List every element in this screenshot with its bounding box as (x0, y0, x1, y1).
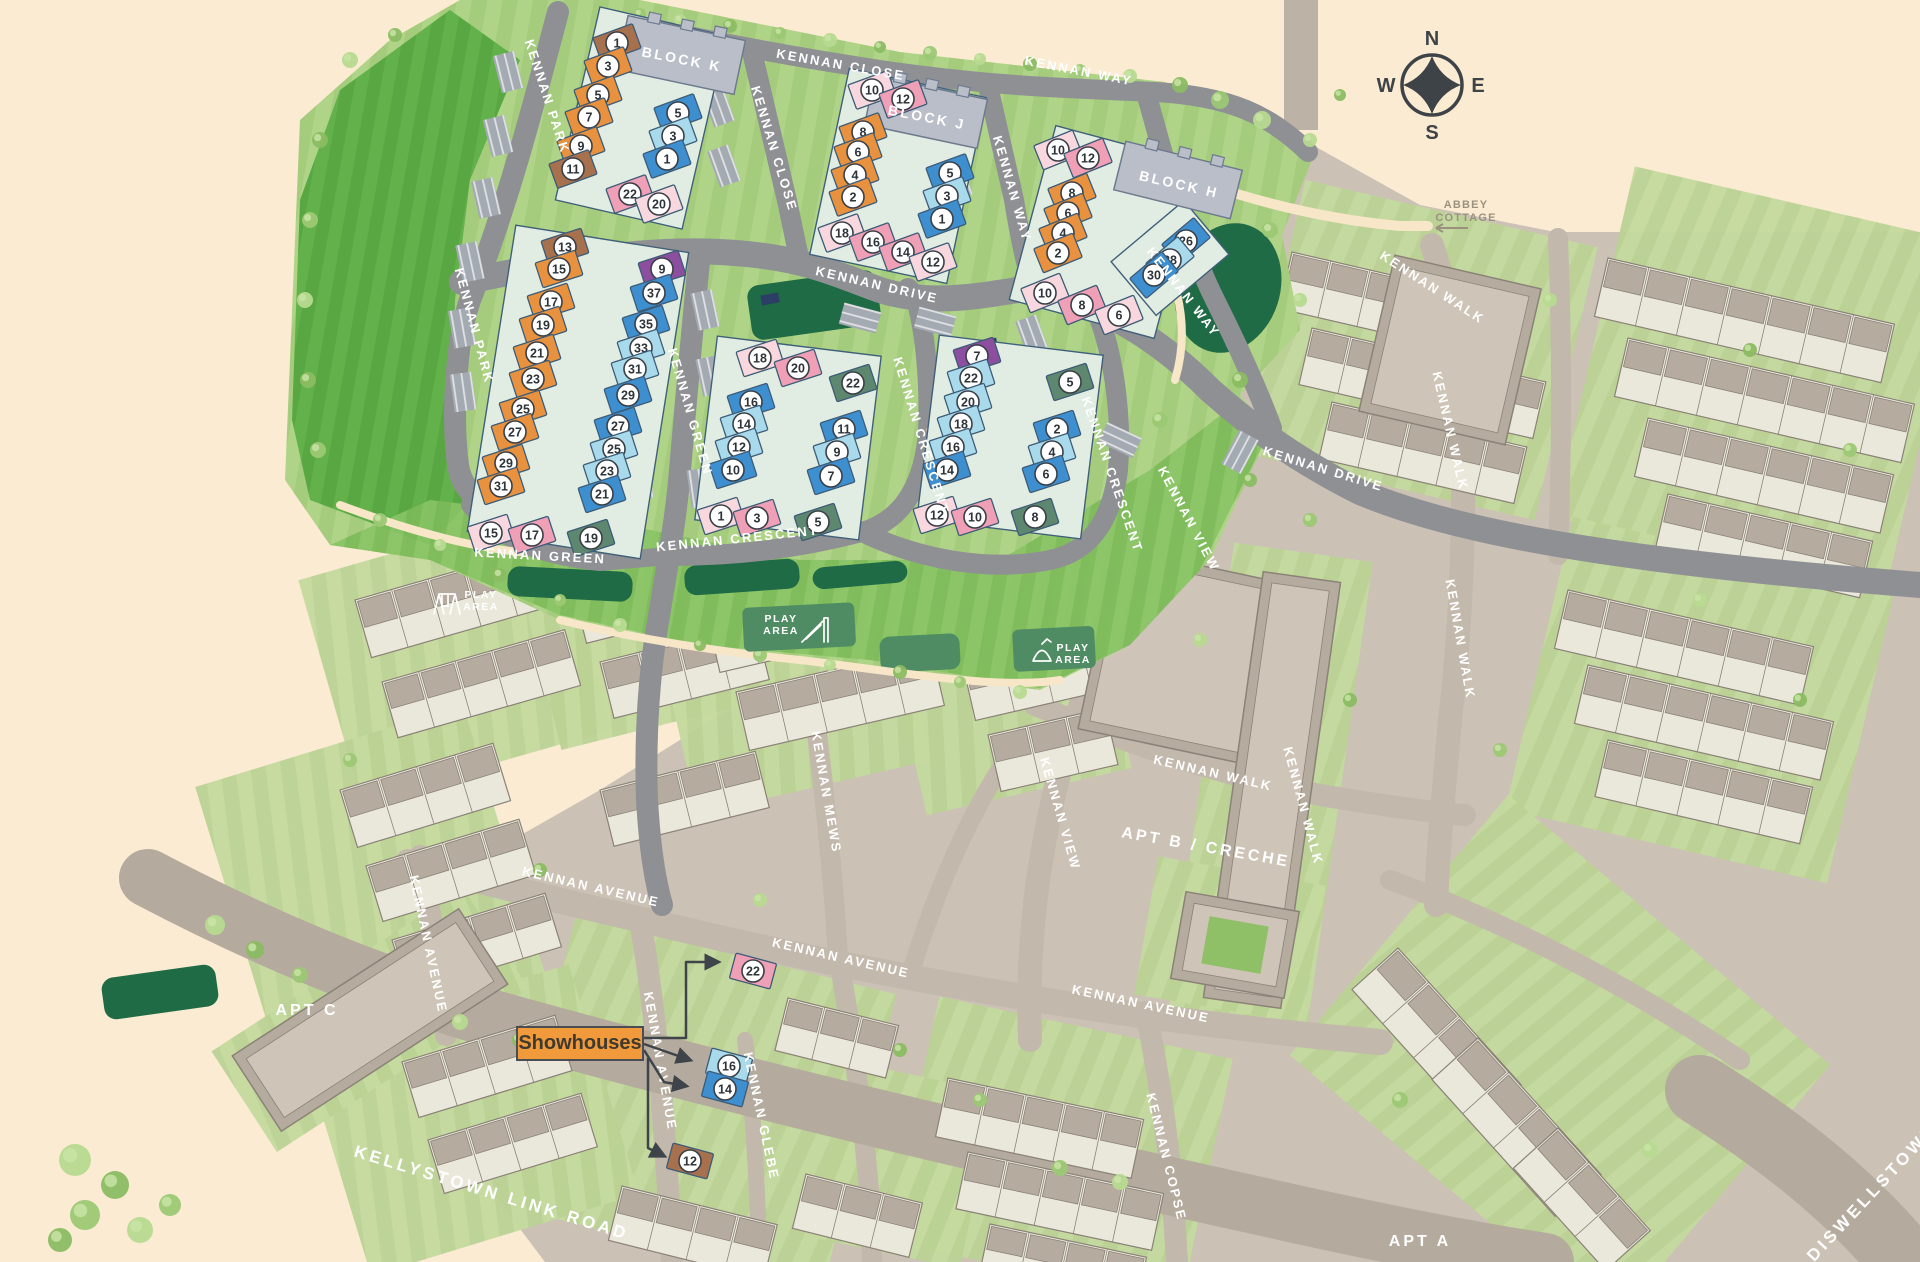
unit-number: 15 (484, 527, 498, 541)
unit-number: 22 (846, 377, 860, 391)
unit-number: 14 (718, 1083, 732, 1097)
compass-south: S (1425, 122, 1438, 144)
unit-number: 20 (791, 362, 805, 376)
unit-number: 7 (586, 111, 593, 125)
unit-number: 9 (834, 446, 841, 460)
unit-number: 4 (852, 169, 859, 183)
unit-number: 10 (1051, 144, 1065, 158)
unit-number: 18 (835, 227, 849, 241)
unit-number: 22 (746, 965, 760, 979)
unit-number: 19 (536, 319, 550, 333)
unit-number: 3 (605, 60, 612, 74)
unit-number: 31 (494, 480, 508, 494)
unit-number: 27 (611, 420, 625, 434)
play-area: PLAYAREA (742, 602, 856, 652)
play-area-label: PLAY (764, 613, 797, 625)
unit-number: 35 (639, 318, 653, 332)
unit-number: 12 (926, 256, 940, 270)
unit-number: 8 (1032, 511, 1039, 525)
site-plan-page: 1357911531222010128642531181614121012864… (0, 0, 1920, 1262)
unit-number: 21 (530, 347, 544, 361)
unit-number: 16 (866, 236, 880, 250)
play-area-label: PLAY (1056, 642, 1089, 654)
unit-number: 23 (526, 373, 540, 387)
unit-number: 21 (595, 488, 609, 502)
unit-number: 37 (647, 287, 661, 301)
svg-text:COTTAGE: COTTAGE (1435, 212, 1496, 224)
unit-number: 16 (722, 1060, 736, 1074)
unit-number: 20 (652, 198, 666, 212)
site-plan-map: 1357911531222010128642531181614121012864… (0, 0, 1920, 1262)
compass-east: E (1471, 75, 1484, 97)
unit-number: 12 (1081, 152, 1095, 166)
unit-number: 1 (939, 213, 946, 227)
unit-number: 5 (947, 167, 954, 181)
unit-number: 6 (855, 146, 862, 160)
play-area-label: AREA (763, 625, 799, 637)
play-area-label: AREA (1055, 654, 1091, 666)
unit-number: 2 (1054, 423, 1061, 437)
unit-number: 1 (664, 153, 671, 167)
unit-number: 3 (944, 190, 951, 204)
apartment-label: APT C (276, 1002, 339, 1019)
unit-number: 7 (828, 470, 835, 484)
play-area-label: AREA (463, 601, 499, 613)
unit-number: 1 (718, 510, 725, 524)
play-area: PLAYAREA (1012, 626, 1096, 672)
unit-number: 9 (659, 263, 666, 277)
unit-number: 6 (1043, 468, 1050, 482)
unit-number: 11 (566, 163, 579, 177)
showhouses-label: Showhouses (518, 1032, 641, 1054)
unit-number: 17 (525, 529, 539, 543)
svg-text:ABBEY: ABBEY (1444, 199, 1489, 211)
unit-number: 10 (726, 464, 740, 478)
unit-number: 5 (675, 107, 682, 121)
unit-number: 14 (896, 246, 910, 260)
unit-number: 6 (1116, 309, 1123, 323)
compass-north: N (1425, 28, 1439, 50)
unit-number: 31 (628, 363, 642, 377)
unit-number: 8 (1079, 299, 1086, 313)
unit-number: 18 (753, 352, 767, 366)
unit-number: 12 (683, 1155, 697, 1169)
unit-number: 10 (968, 511, 982, 525)
unit-number: 15 (552, 263, 566, 277)
unit-number: 3 (754, 512, 761, 526)
unit-number: 29 (621, 389, 635, 403)
unit-number: 22 (964, 372, 978, 386)
unit-number: 27 (508, 426, 522, 440)
unit-number: 10 (865, 84, 879, 98)
unit-number: 10 (1038, 287, 1052, 301)
unit-number: 2 (850, 191, 857, 205)
unit-number: 19 (584, 532, 598, 546)
unit-number: 2 (1055, 247, 1062, 261)
compass-west: W (1377, 75, 1396, 97)
apartment-label: APT A (1389, 1233, 1451, 1250)
play-area-label: PLAY (464, 589, 497, 601)
unit-number: 5 (1067, 376, 1074, 390)
